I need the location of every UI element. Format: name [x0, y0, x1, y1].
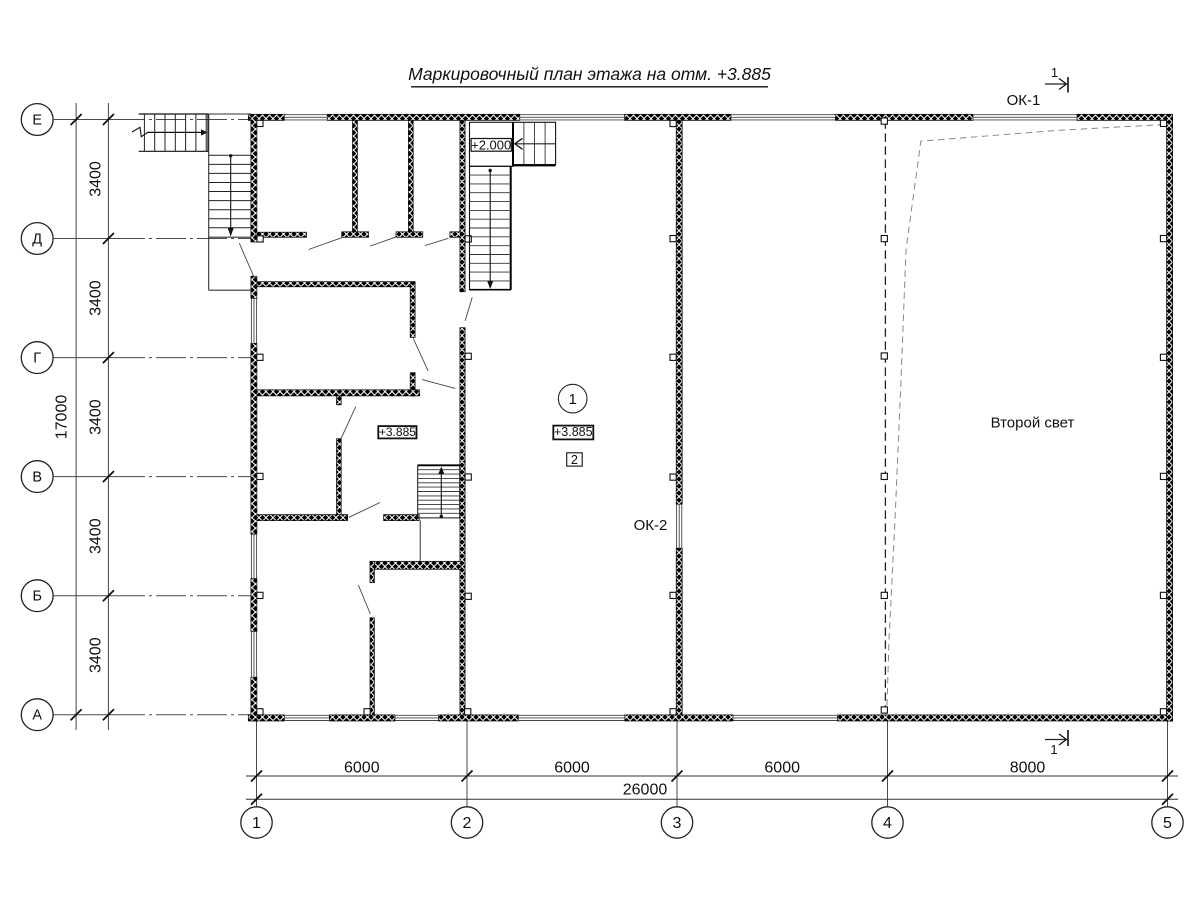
svg-text:2: 2 [463, 815, 472, 832]
svg-text:ОК-2: ОК-2 [634, 517, 668, 534]
svg-text:5: 5 [1163, 815, 1172, 832]
svg-text:Маркировочный план этажа на от: Маркировочный план этажа на отм. +3.885 [408, 64, 771, 84]
svg-text:3400: 3400 [88, 518, 105, 554]
svg-text:Второй свет: Второй свет [991, 415, 1075, 432]
svg-text:+3.885: +3.885 [554, 425, 593, 439]
svg-text:ОК-1: ОК-1 [1007, 92, 1041, 109]
svg-text:3400: 3400 [88, 399, 105, 435]
svg-text:26000: 26000 [623, 782, 668, 799]
svg-text:2: 2 [571, 452, 578, 467]
svg-text:Е: Е [32, 113, 42, 129]
svg-text:1: 1 [1050, 742, 1057, 757]
svg-text:6000: 6000 [554, 759, 590, 776]
svg-text:+2.000: +2.000 [471, 137, 511, 152]
svg-text:Г: Г [33, 351, 41, 367]
svg-text:8000: 8000 [1010, 759, 1046, 776]
svg-text:3400: 3400 [88, 637, 105, 673]
svg-text:1: 1 [1051, 65, 1058, 80]
svg-text:+3.885: +3.885 [379, 425, 416, 439]
svg-text:В: В [32, 470, 42, 486]
svg-text:1: 1 [252, 815, 261, 832]
svg-text:Д: Д [32, 232, 42, 248]
svg-text:3: 3 [673, 815, 682, 832]
svg-text:6000: 6000 [764, 759, 800, 776]
svg-text:3400: 3400 [88, 280, 105, 316]
svg-text:4: 4 [883, 815, 892, 832]
svg-text:Б: Б [32, 589, 42, 605]
svg-text:17000: 17000 [54, 395, 71, 440]
svg-text:3400: 3400 [88, 161, 105, 197]
svg-text:1: 1 [569, 391, 577, 408]
svg-text:6000: 6000 [344, 759, 380, 776]
svg-text:А: А [32, 708, 42, 724]
